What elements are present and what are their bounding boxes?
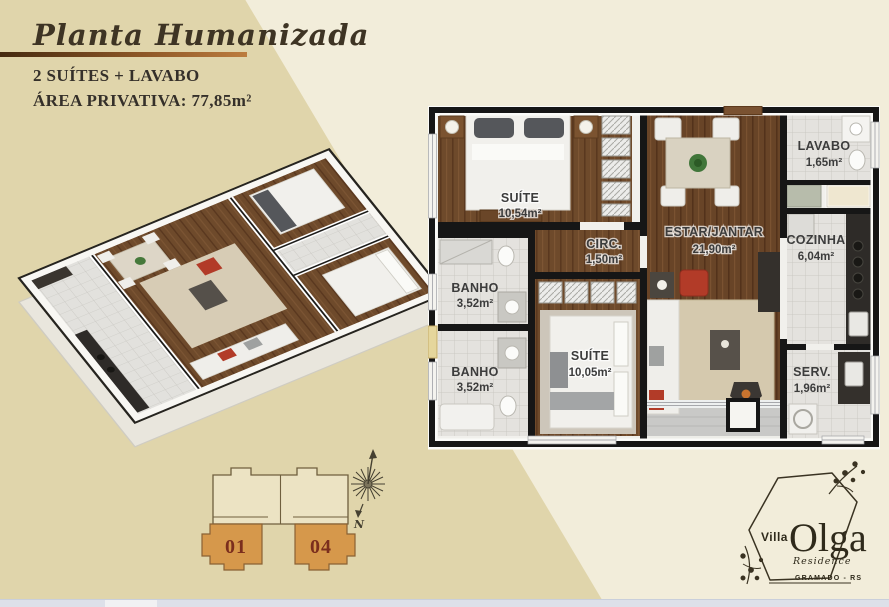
private-area-line: ÁREA PRIVATIVA: 77,85m² <box>33 91 252 111</box>
room-name: COZINHA <box>786 233 845 247</box>
flyer-page: Planta Humanizada 2 SUÍTES + LAVABO ÁREA… <box>0 0 889 607</box>
room-area: 21,90m² <box>693 244 736 256</box>
unit-number: 04 <box>310 536 332 558</box>
bottom-edge-strip <box>0 599 889 607</box>
room-area: 1,96m² <box>794 383 831 395</box>
room-name: LAVABO <box>798 139 851 153</box>
compass-rose: N <box>336 448 406 533</box>
unit-number: 01 <box>225 536 247 558</box>
room-name: CIRC. <box>586 237 622 251</box>
north-label: N <box>353 518 365 531</box>
features-line: 2 SUÍTES + LAVABO <box>33 66 200 86</box>
room-area: 3,52m² <box>457 382 494 394</box>
brand-logo: Villa Olga Residence GRAMADO - RS <box>733 452 888 604</box>
entry-door <box>724 107 762 115</box>
floorplan-3d-render <box>10 112 445 462</box>
utility-boxes <box>787 185 870 207</box>
terrace-column <box>728 400 758 430</box>
room-name: BANHO <box>451 365 498 379</box>
room-name: SUÍTE <box>571 348 609 363</box>
page-title: Planta Humanizada <box>33 18 369 52</box>
room-area: 10,05m² <box>569 367 612 379</box>
room-area: 6,04m² <box>798 251 835 263</box>
room-area: 10,54m² <box>499 208 542 220</box>
logo-olga-text: Olga <box>789 515 867 560</box>
bottom-edge-tab <box>105 600 157 607</box>
room-name: SUÍTE <box>501 190 539 205</box>
logo-residence-text: Residence <box>792 556 851 567</box>
logo-city-text: GRAMADO - RS <box>795 575 862 582</box>
room-area: 1,50m² <box>586 254 623 266</box>
room-name: ESTAR/JANTAR <box>665 225 763 239</box>
suite1-furniture <box>440 114 630 222</box>
room-name: SERV. <box>793 365 831 379</box>
flower-ornament-icon <box>741 546 763 584</box>
room-name: BANHO <box>451 281 498 295</box>
room-area: 3,52m² <box>457 298 494 310</box>
floorplan-2d: SUÍTE 10,54m² CIRC. 1,50m² ESTAR/JANTAR … <box>428 106 880 462</box>
logo-villa-text: Villa <box>761 530 788 544</box>
entry-mat <box>428 326 437 358</box>
title-underline <box>0 52 247 57</box>
room-area: 1,65m² <box>806 157 843 169</box>
